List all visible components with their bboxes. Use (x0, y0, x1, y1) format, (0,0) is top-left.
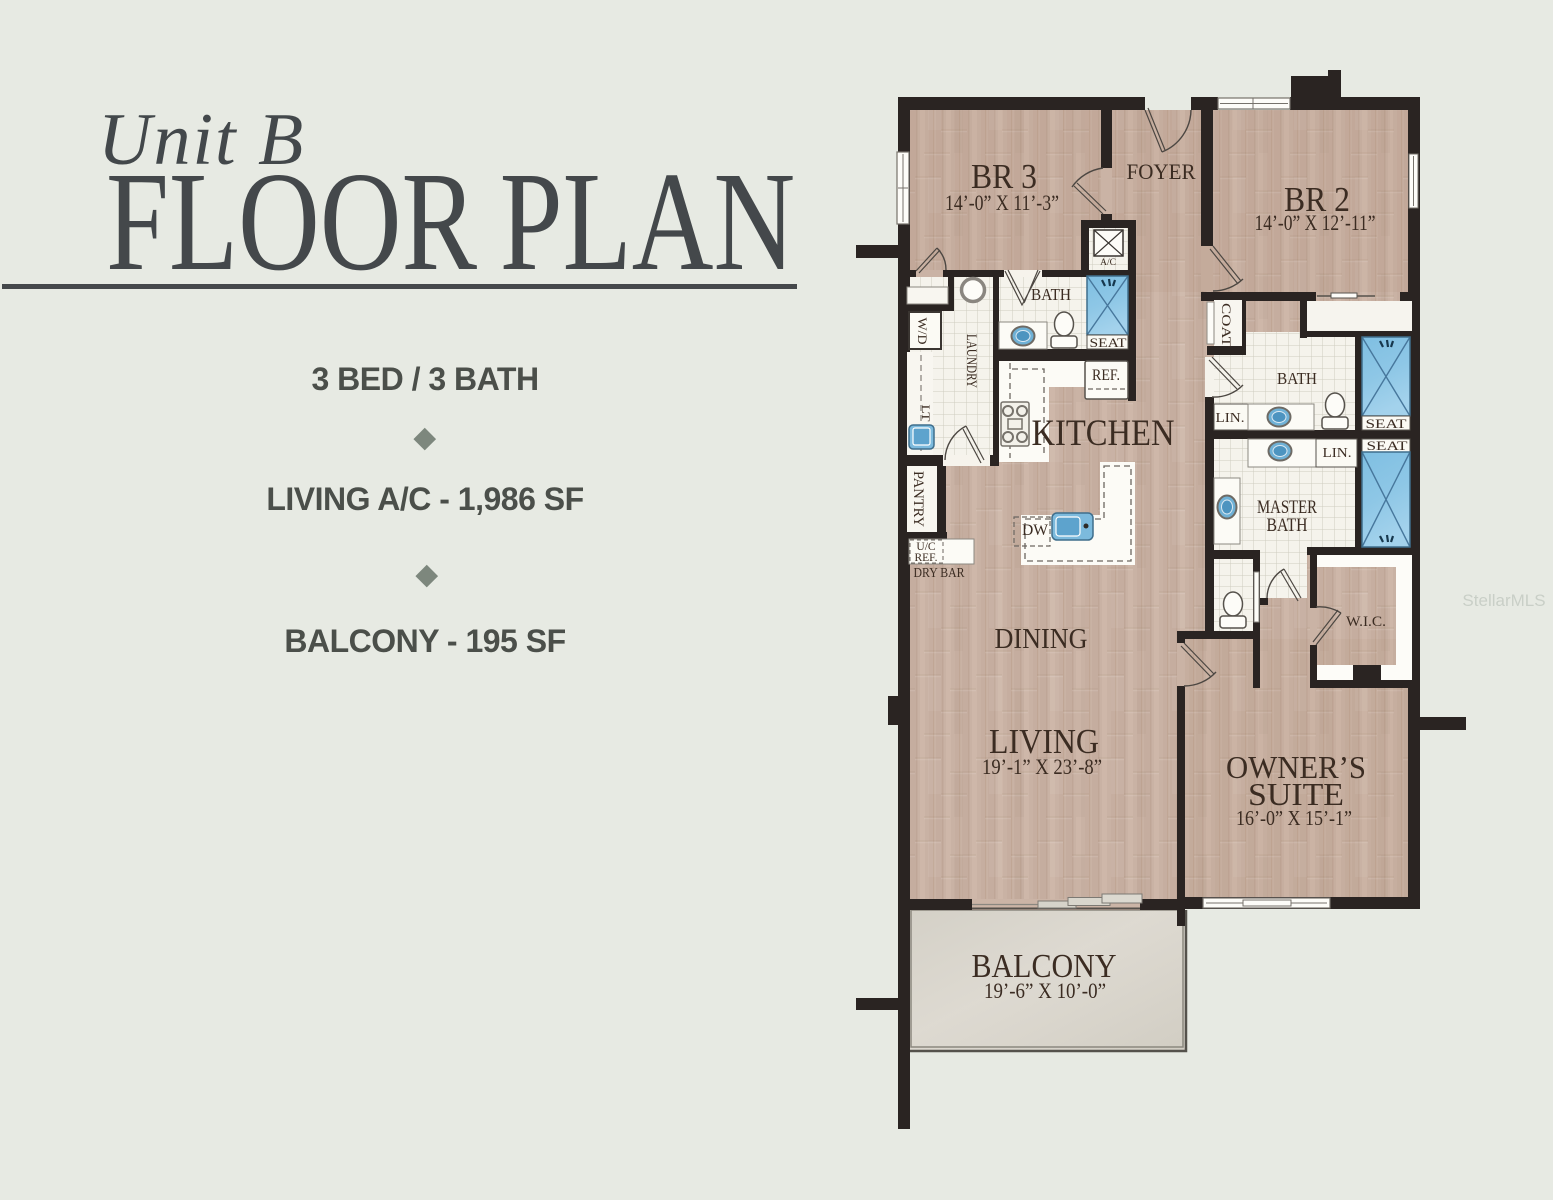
svg-text:LIN.: LIN. (1323, 445, 1352, 460)
svg-text:SEAT: SEAT (1090, 336, 1127, 350)
svg-text:DRY BAR: DRY BAR (914, 566, 966, 581)
svg-text:KITCHEN: KITCHEN (1032, 413, 1175, 454)
svg-text:19’-1” X 23’-8”: 19’-1” X 23’-8” (982, 754, 1102, 779)
svg-text:BATH: BATH (1031, 285, 1071, 304)
svg-text:LT: LT (919, 405, 933, 423)
svg-text:FOYER: FOYER (1127, 159, 1196, 184)
svg-text:DINING: DINING (995, 624, 1088, 655)
svg-text:A/C: A/C (1100, 258, 1116, 268)
svg-text:REF.: REF. (1092, 367, 1120, 384)
svg-text:StellarMLS: StellarMLS (1462, 591, 1545, 610)
svg-text:COAT: COAT (1219, 303, 1234, 347)
svg-text:BATH: BATH (1267, 515, 1308, 536)
svg-text:14’-0” X 12’-11”: 14’-0” X 12’-11” (1255, 210, 1376, 235)
svg-text:LAUNDRY: LAUNDRY (963, 334, 979, 388)
svg-text:W.I.C.: W.I.C. (1346, 614, 1386, 630)
svg-text:PANTRY: PANTRY (910, 471, 926, 527)
svg-text:19’-6” X 10’-0”: 19’-6” X 10’-0” (984, 978, 1106, 1003)
svg-text:14’-0” X 11’-3”: 14’-0” X 11’-3” (945, 190, 1059, 215)
svg-text:LIN.: LIN. (1216, 410, 1245, 425)
svg-text:SEAT: SEAT (1366, 417, 1407, 431)
svg-text:SEAT: SEAT (1367, 439, 1408, 453)
svg-text:16’-0” X 15’-1”: 16’-0” X 15’-1” (1236, 806, 1352, 830)
svg-text:BATH: BATH (1277, 369, 1317, 388)
svg-text:REF.: REF. (914, 552, 937, 564)
svg-text:DW: DW (1022, 522, 1049, 539)
svg-text:W/D: W/D (915, 318, 930, 345)
